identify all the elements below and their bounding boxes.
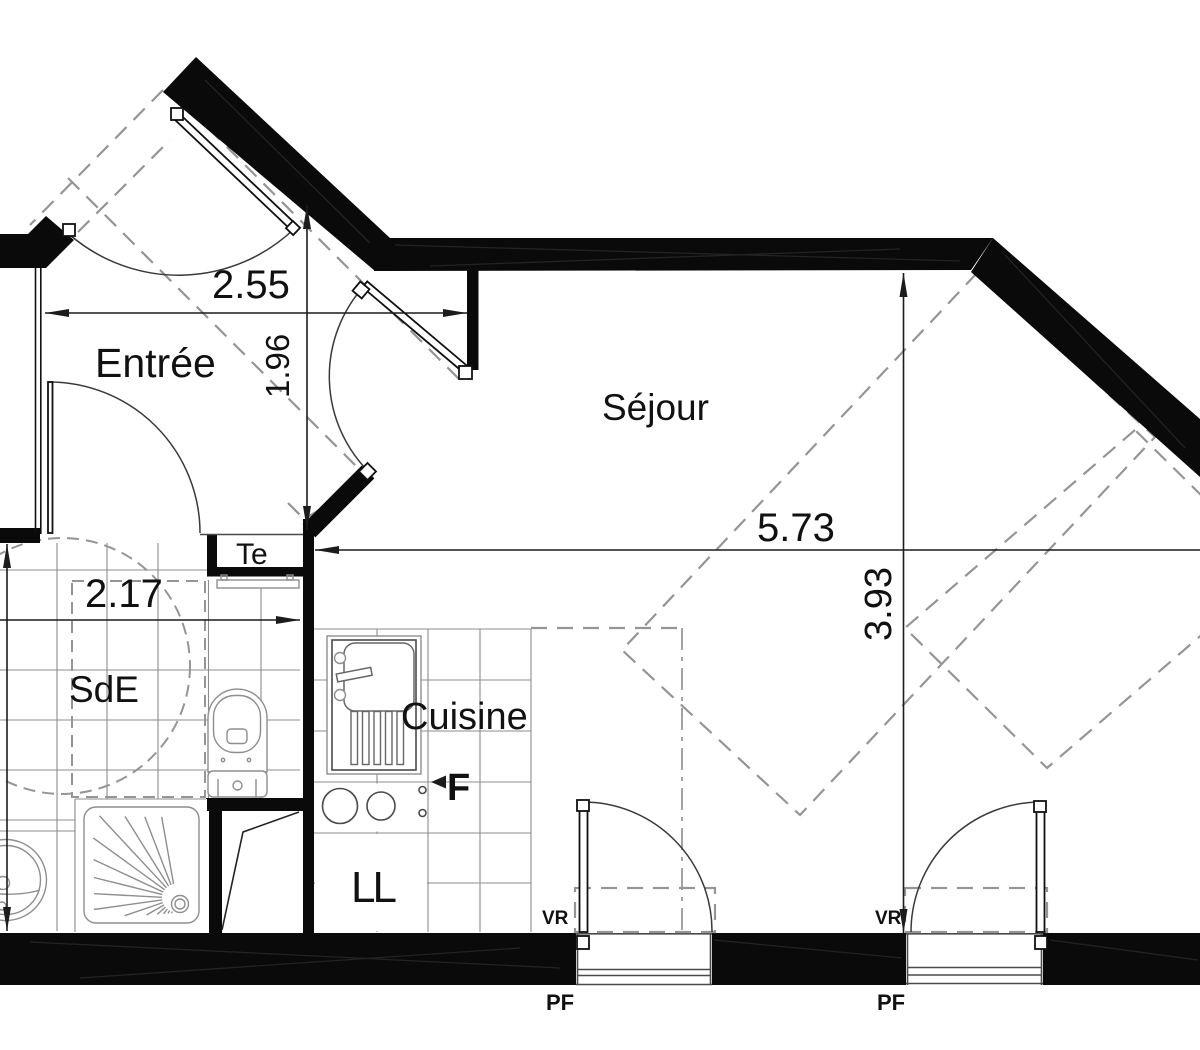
svg-text:1.96: 1.96 bbox=[259, 334, 296, 398]
svg-text:3.93: 3.93 bbox=[858, 567, 900, 641]
svg-text:Entrée: Entrée bbox=[95, 340, 216, 386]
svg-text:PF: PF bbox=[877, 990, 905, 1015]
svg-text:VR: VR bbox=[542, 908, 569, 929]
svg-text:5.73: 5.73 bbox=[757, 506, 835, 550]
svg-text:PF: PF bbox=[546, 990, 574, 1015]
svg-text:F: F bbox=[447, 767, 470, 809]
svg-text:LL: LL bbox=[351, 863, 396, 912]
svg-text:Cuisine: Cuisine bbox=[401, 696, 528, 738]
svg-text:Te: Te bbox=[236, 538, 268, 571]
svg-text:VR: VR bbox=[875, 908, 902, 929]
svg-text:Séjour: Séjour bbox=[602, 387, 709, 428]
svg-text:2.55: 2.55 bbox=[212, 263, 290, 307]
svg-text:2.17: 2.17 bbox=[85, 572, 163, 616]
svg-text:SdE: SdE bbox=[69, 669, 139, 710]
